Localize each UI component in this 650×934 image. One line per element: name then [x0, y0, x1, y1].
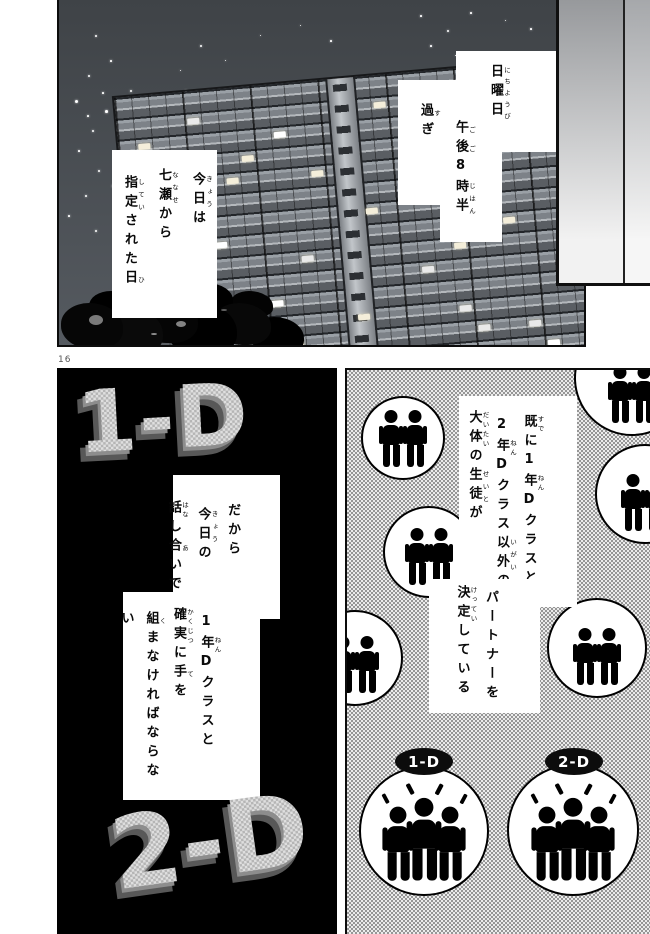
caption-today-text: 今日きょうは七瀬ななせから指定していされた日ひ [112, 160, 214, 315]
class-1d-title-face: 1-D [75, 368, 253, 473]
manga-page: 日曜日にちようび午後ごご8時半じはん過すぎ 今日きょうは七瀬ななせから指定してい… [0, 0, 650, 934]
tower-face-right [623, 0, 650, 283]
person-icon [573, 628, 597, 686]
tower-face-left [559, 0, 623, 283]
bubble-partner-text: パートナーを決定けっていしている [451, 583, 503, 715]
person-icon [355, 636, 379, 694]
person-icon [429, 528, 453, 586]
person-icon [403, 410, 427, 468]
person-icon [608, 368, 632, 424]
panel-class-1d-2d: 1-D 1-D 1-D だから今日きょうの話はなし合あいで 1年ねんDクラスと確… [57, 368, 337, 934]
person-icon [434, 807, 465, 882]
students-pair-circle [574, 368, 650, 436]
class-1d-badge: 1-D [395, 748, 453, 775]
students-pair-circle [361, 396, 445, 480]
bright-tower-building [556, 0, 650, 286]
person-icon [632, 368, 650, 424]
caption-time-text: 日曜日にちようび午後ごご8時半じはん過すぎ [403, 58, 513, 243]
class-2d-title: 2-D 2-D 2-D [105, 779, 317, 906]
class-2d-badge: 2-D [545, 748, 603, 775]
person-icon [583, 807, 614, 882]
class-2d-students-circle [507, 764, 639, 896]
page-number: 16 [58, 355, 71, 365]
panel-partner-status: 既すでに1年ねんDクラスと2年ねんDクラス以外いがいの大体だいたいの生徒せいとが… [345, 368, 650, 934]
students-pair-circle [547, 598, 647, 698]
person-icon [597, 628, 621, 686]
bubble-alliance-text: 1年ねんDクラスと確実かくじつに手てを組くまなければならない [146, 604, 221, 794]
tree-highlights [89, 315, 103, 325]
person-icon [345, 636, 355, 694]
students-pair-circle [345, 610, 403, 706]
class-1d-title: 1-D 1-D 1-D [75, 372, 252, 467]
panel-night-scene: 日曜日にちようび午後ごご8時半じはん過すぎ 今日きょうは七瀬ななせから指定してい… [57, 0, 586, 347]
person-icon [379, 410, 403, 468]
person-icon [645, 474, 650, 532]
class-1d-students-circle [359, 766, 489, 896]
students-pair-circle [595, 444, 650, 544]
person-icon [621, 474, 645, 532]
person-icon [405, 528, 429, 586]
